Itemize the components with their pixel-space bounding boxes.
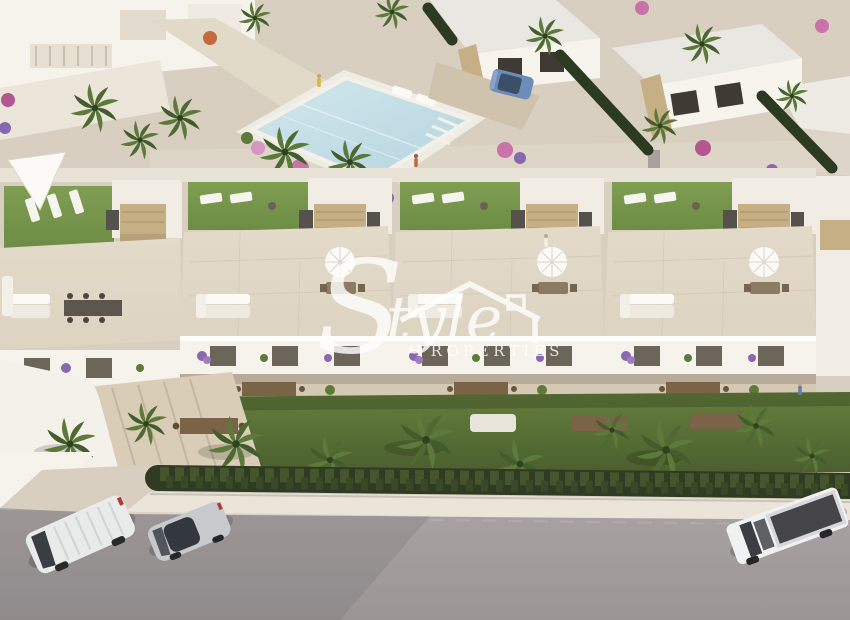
person-poolside [414, 154, 418, 167]
person-walking-path [317, 74, 321, 87]
person-balcony [798, 382, 802, 395]
hedge-row [158, 474, 850, 490]
scene-canvas: S tyle PROPERTIES [0, 0, 850, 620]
townhouse-row [0, 152, 850, 404]
aerial-property-render: S tyle PROPERTIES [0, 0, 850, 620]
person-terrace [544, 234, 548, 247]
row-right-edge [816, 176, 850, 376]
left-unit [0, 152, 182, 386]
watermark-caption: PROPERTIES [416, 342, 564, 360]
